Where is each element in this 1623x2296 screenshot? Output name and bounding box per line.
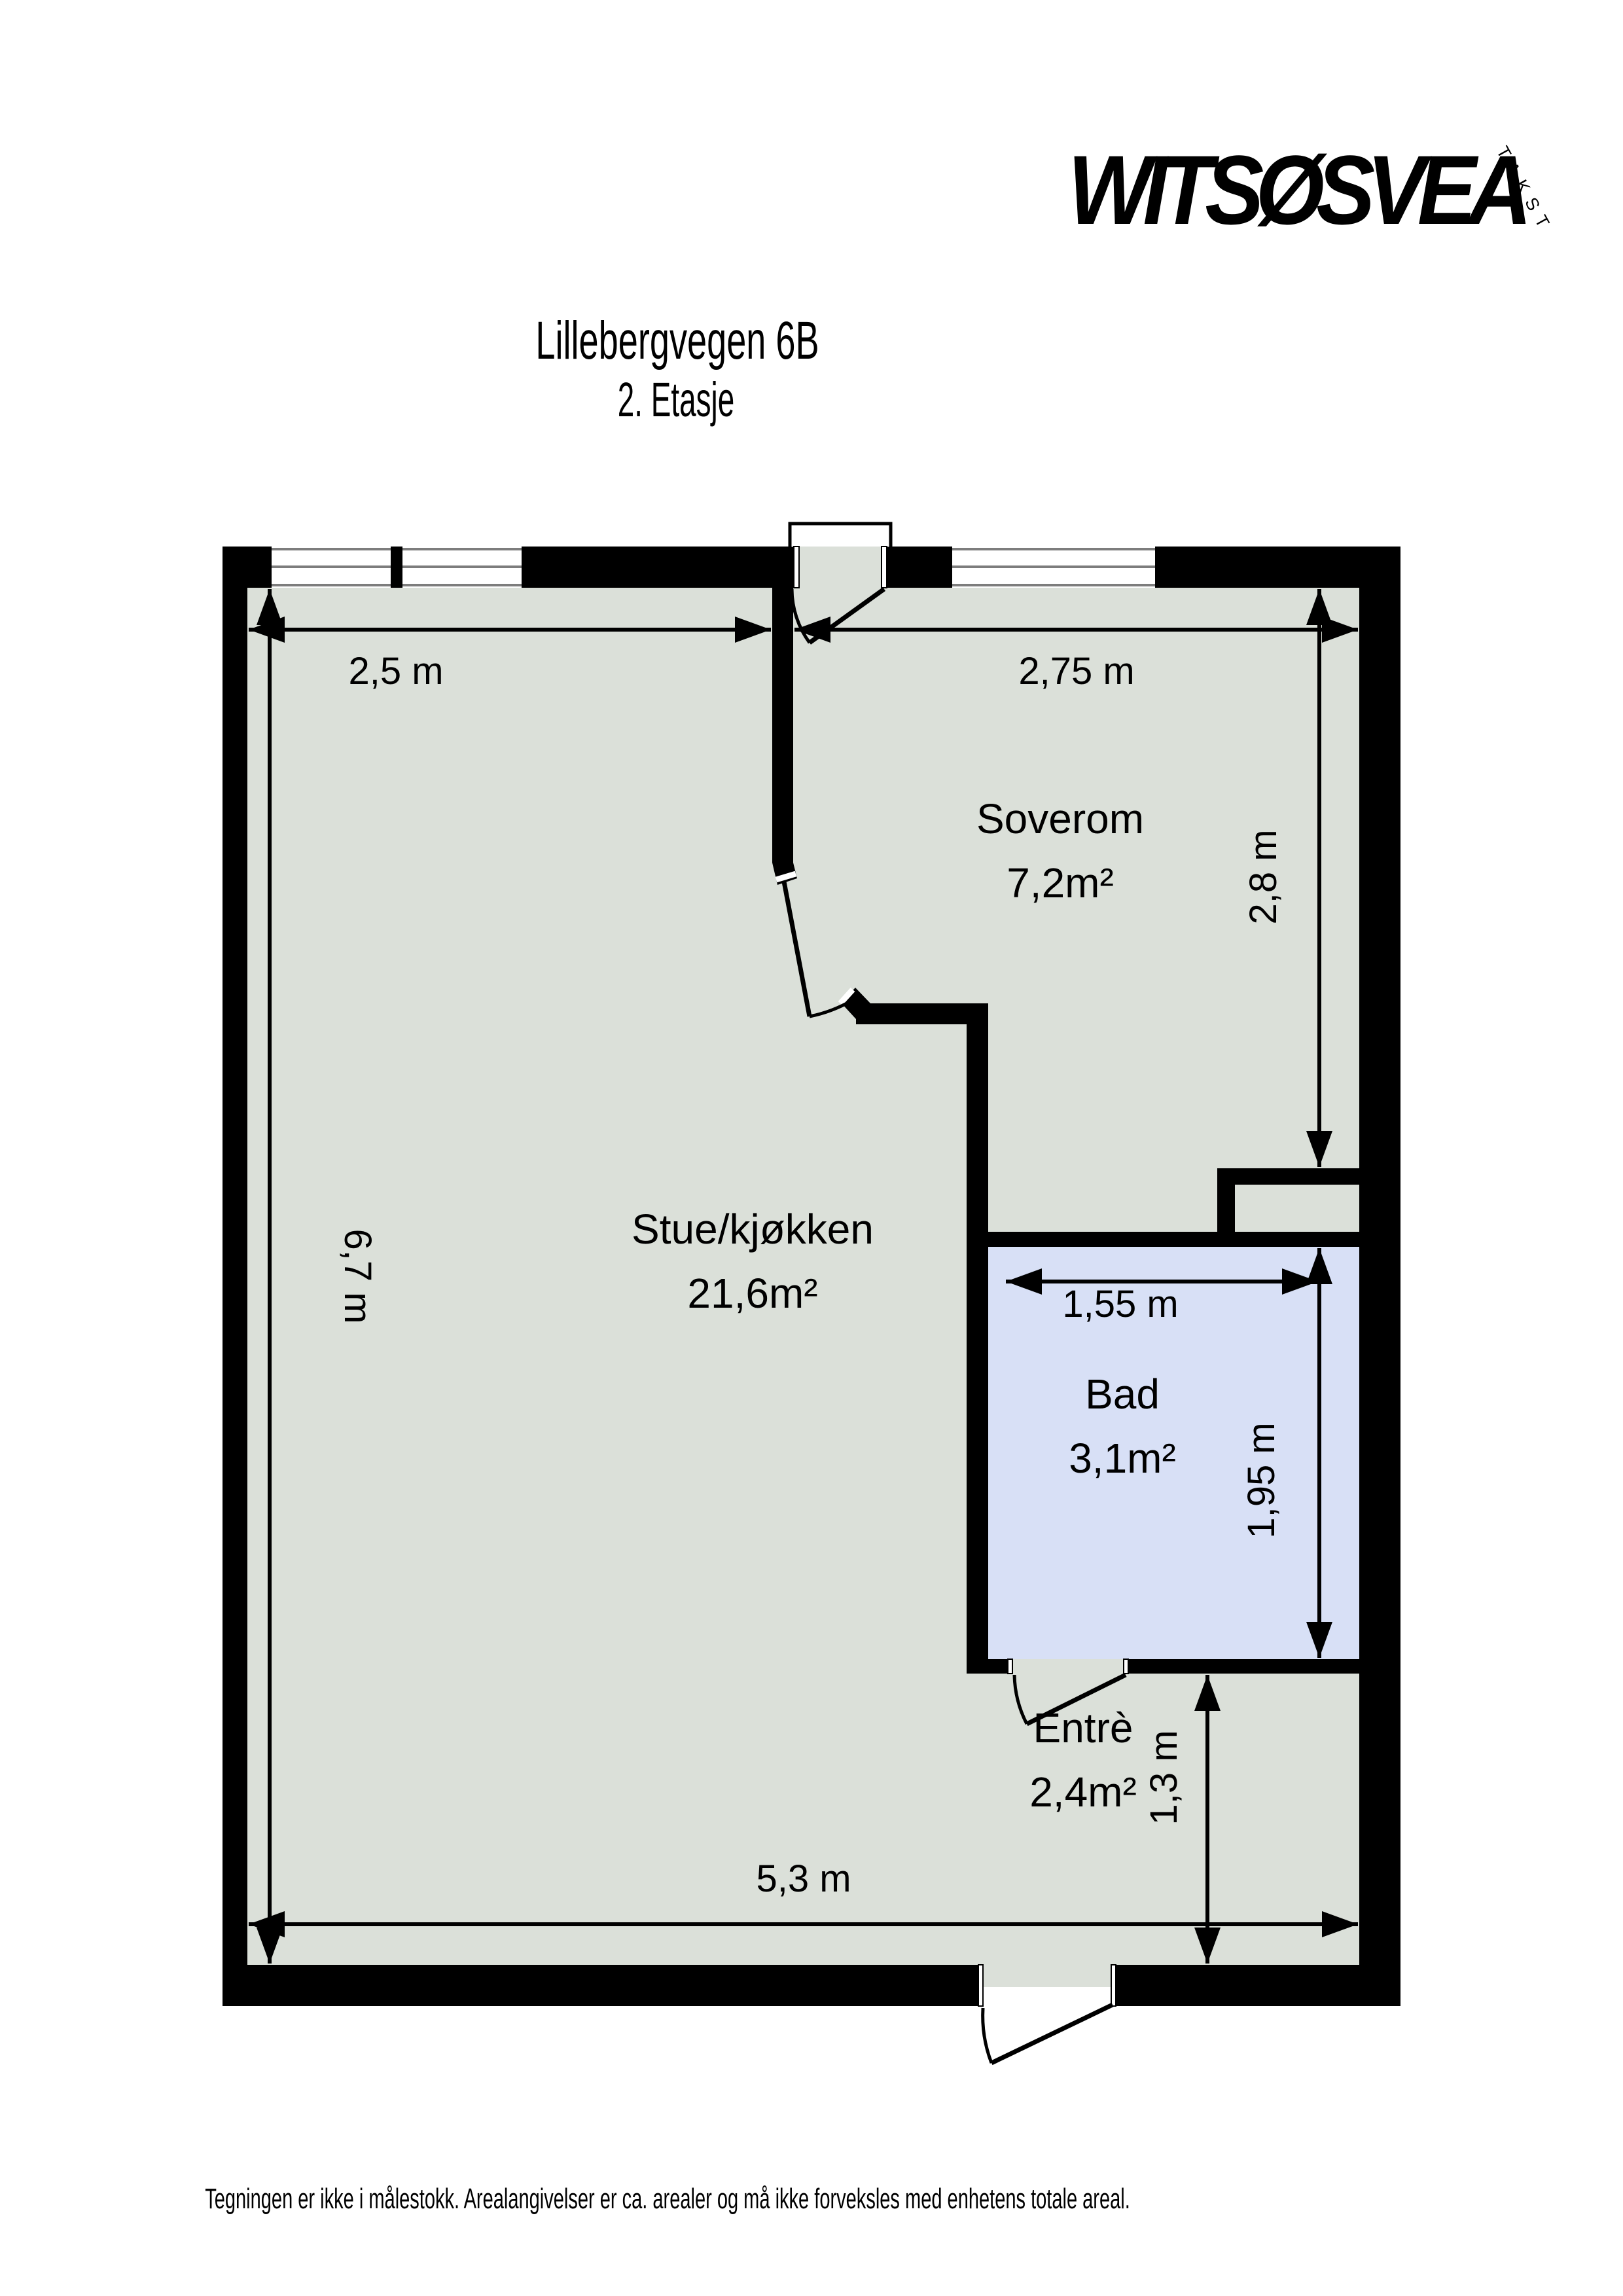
dimension-label-entre-height: 1,3 m	[1143, 1730, 1185, 1825]
dimension-label-total-width: 5,3 m	[756, 1857, 851, 1900]
door-leaf	[991, 2005, 1113, 2063]
wall-segment	[1217, 1168, 1359, 1185]
door-jamb	[1111, 1965, 1116, 2006]
disclaimer: Tegningen er ikke i målestokk. Arealangi…	[205, 2182, 1130, 2215]
window	[952, 547, 1155, 588]
entrance-door	[978, 1965, 1116, 2063]
dimension-label-soverom-width: 2,75 m	[1018, 650, 1134, 692]
door-jamb	[794, 547, 799, 588]
dimension-label-soverom-height: 2,8 m	[1242, 829, 1285, 924]
window	[402, 547, 522, 588]
room-area: 7,2m²	[1007, 859, 1114, 906]
wall-segment	[1124, 1659, 1359, 1674]
door-jamb	[882, 547, 887, 588]
wall-segment	[1116, 1965, 1400, 2006]
room-area: 2,4m²	[1029, 1768, 1137, 1816]
door-jamb	[1124, 1659, 1128, 1674]
wall-segment	[988, 1232, 1359, 1247]
wall-segment	[223, 547, 247, 2006]
door-threshold	[1012, 1659, 1124, 1674]
wall-segment	[772, 588, 793, 863]
door-opening	[983, 1965, 1111, 1987]
room-name: Entrè	[1033, 1704, 1133, 1751]
wall-segment	[391, 547, 402, 588]
dimension-label-stue-width: 2,5 m	[348, 650, 443, 692]
page-title: Lillebergvegen 6B	[535, 310, 819, 370]
door-jamb	[978, 1965, 983, 2006]
dimension-label-bad-width: 1,55 m	[1062, 1283, 1178, 1325]
wall-segment	[522, 547, 794, 588]
dimension-label-bad-height: 1,95 m	[1240, 1422, 1283, 1538]
wall-segment	[887, 547, 952, 588]
door-opening	[794, 547, 887, 588]
logo-brand: WITSØSVEA	[1068, 135, 1526, 245]
room-name: Soverom	[976, 795, 1144, 842]
room-area: 3,1m²	[1069, 1435, 1176, 1482]
door-swing-arc	[983, 2008, 991, 2063]
wall-segment	[967, 1003, 988, 1674]
door-frame	[790, 524, 891, 548]
door-opening-outside	[983, 1987, 1111, 2006]
page-subtitle: 2. Etasje	[618, 373, 734, 427]
room-name: Bad	[1085, 1371, 1160, 1418]
floorplan-canvas: WITSØSVEA TAKST Lillebergvegen 6B 2. Eta…	[0, 0, 1623, 2296]
room-name: Stue/kjøkken	[632, 1206, 874, 1253]
door-jamb	[1008, 1659, 1012, 1674]
wall-segment	[223, 1965, 978, 2006]
wall-segment	[1359, 547, 1400, 2006]
logo: WITSØSVEA TAKST	[1068, 135, 1558, 245]
room-area: 21,6m²	[687, 1270, 817, 1317]
window	[272, 547, 391, 588]
dimension-label-stue-height: 6,7 m	[336, 1229, 379, 1323]
